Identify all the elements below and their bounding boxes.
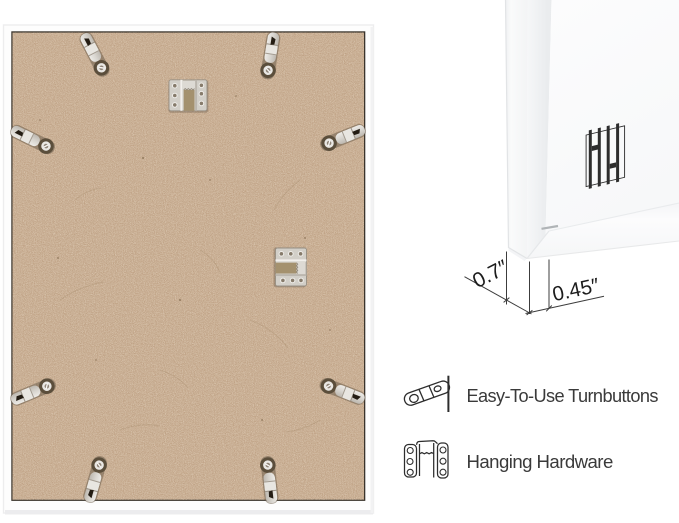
svg-text:0.45″: 0.45″ [550, 274, 601, 306]
svg-text:Hanging Hardware: Hanging Hardware [467, 451, 613, 472]
svg-text:Easy-To-Use Turnbuttons: Easy-To-Use Turnbuttons [467, 386, 659, 406]
